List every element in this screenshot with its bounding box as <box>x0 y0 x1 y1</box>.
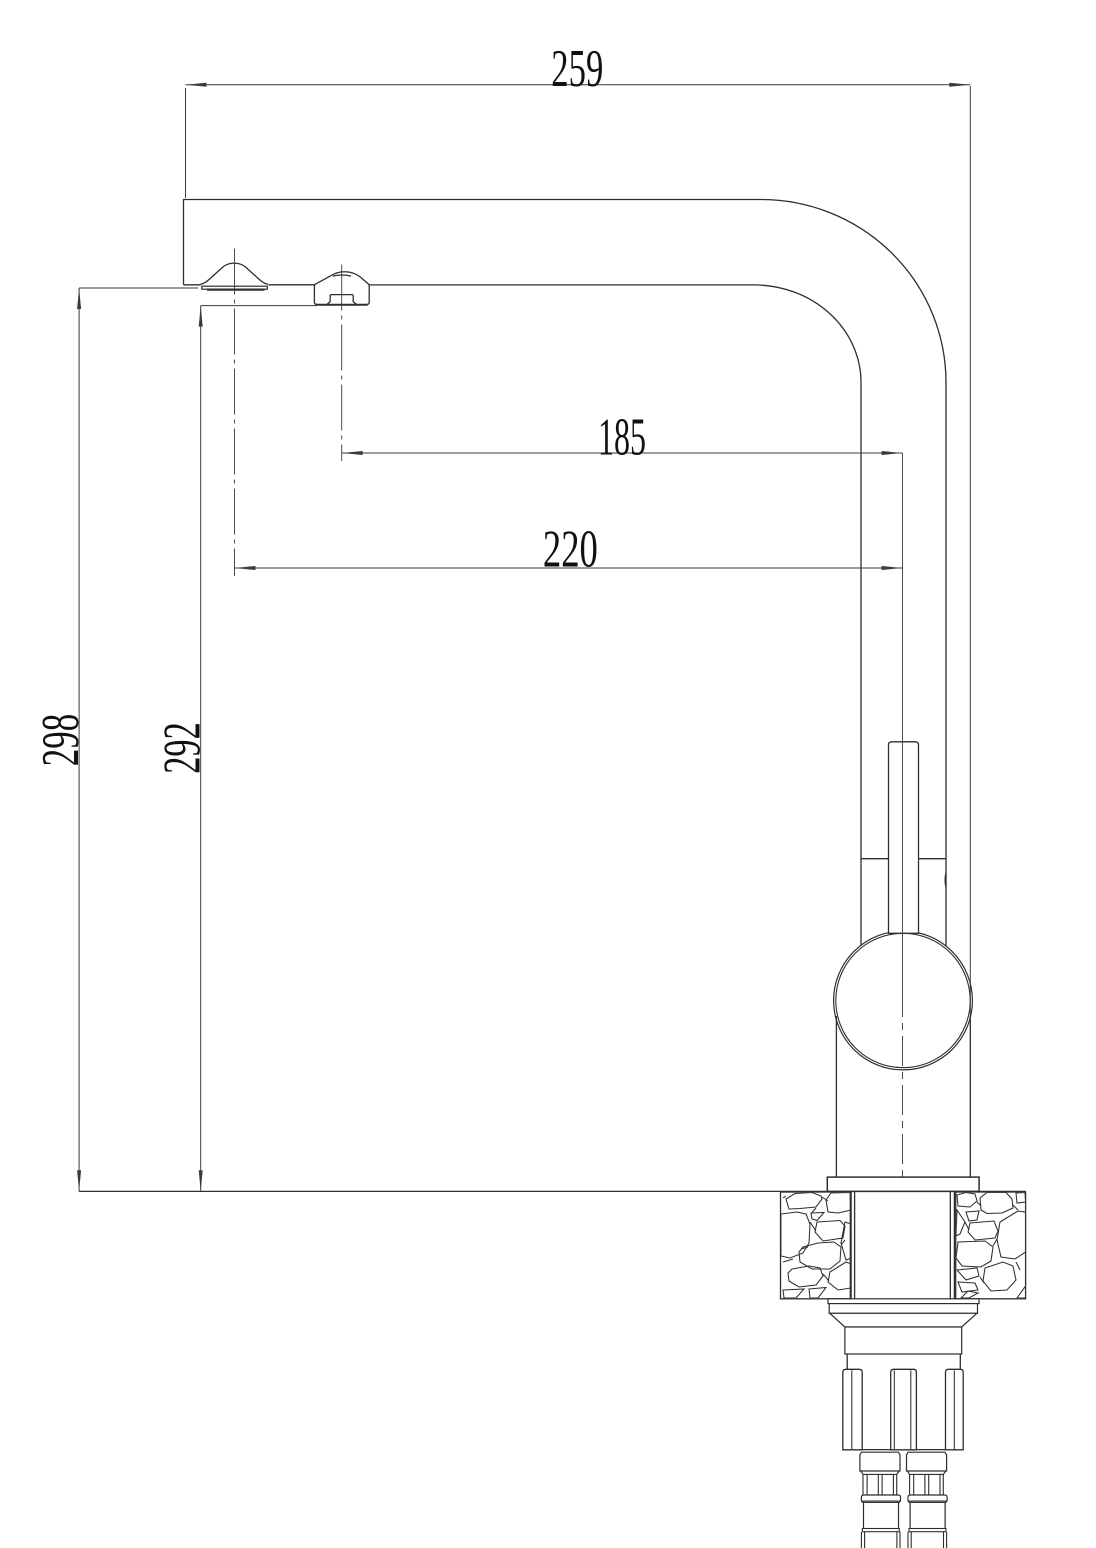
svg-text:185: 185 <box>598 409 646 467</box>
svg-text:298: 298 <box>32 714 90 767</box>
svg-text:259: 259 <box>551 40 603 98</box>
svg-text:220: 220 <box>543 521 598 579</box>
svg-text:292: 292 <box>154 722 212 774</box>
